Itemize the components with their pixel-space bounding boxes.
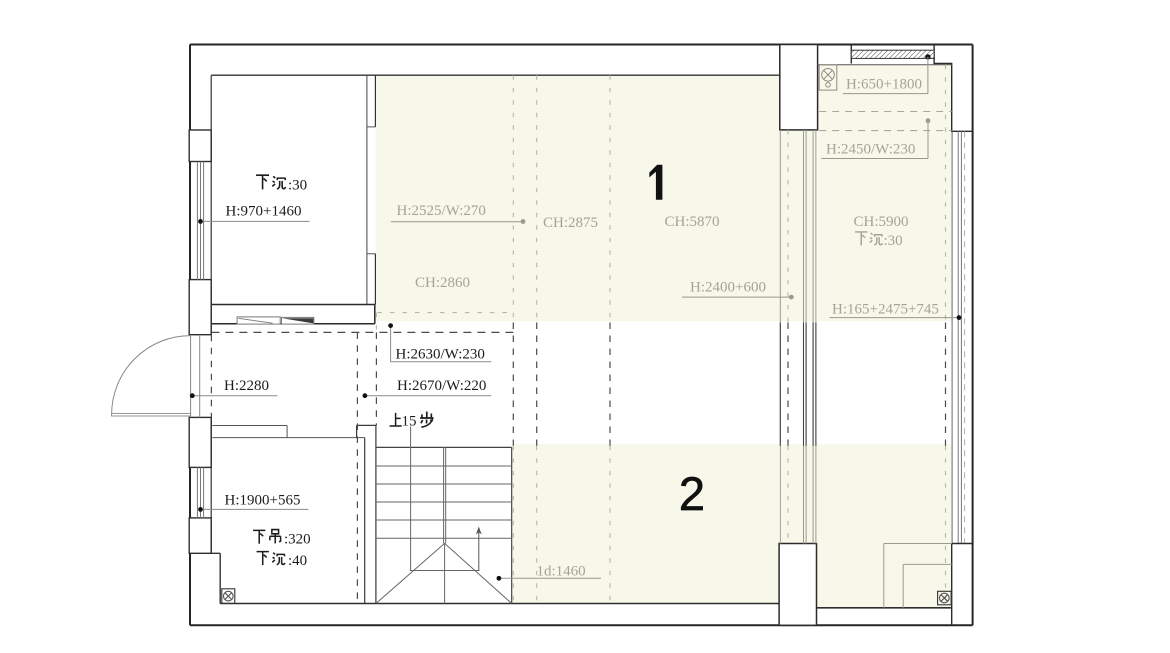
svg-text:H:165+2475+745: H:165+2475+745 — [832, 302, 939, 318]
svg-text:H:2525/W:270: H:2525/W:270 — [397, 203, 486, 219]
svg-text:H:2400+600: H:2400+600 — [690, 280, 766, 296]
svg-text:H:1900+565: H:1900+565 — [225, 493, 301, 509]
svg-text:H:2630/W:230: H:2630/W:230 — [396, 347, 485, 363]
svg-text::320: :320 — [284, 532, 311, 548]
svg-text:2: 2 — [679, 467, 705, 520]
svg-text:15: 15 — [402, 414, 417, 430]
svg-text:H:2280: H:2280 — [224, 378, 269, 394]
svg-text:CH:5900: CH:5900 — [854, 214, 909, 230]
svg-text:H:650+1800: H:650+1800 — [846, 77, 922, 93]
svg-text:CH:2875: CH:2875 — [543, 215, 598, 231]
svg-text:CH:2860: CH:2860 — [415, 275, 470, 291]
svg-text:H:970+1460: H:970+1460 — [226, 204, 302, 220]
svg-text:H:2450/W:230: H:2450/W:230 — [826, 142, 915, 158]
svg-text::30: :30 — [288, 178, 307, 194]
svg-text::30: :30 — [884, 233, 903, 249]
svg-text:H:2670/W:220: H:2670/W:220 — [397, 378, 486, 394]
svg-text:1d:1460: 1d:1460 — [537, 564, 586, 580]
svg-text::40: :40 — [288, 553, 307, 569]
svg-text:CH:5870: CH:5870 — [665, 214, 720, 230]
